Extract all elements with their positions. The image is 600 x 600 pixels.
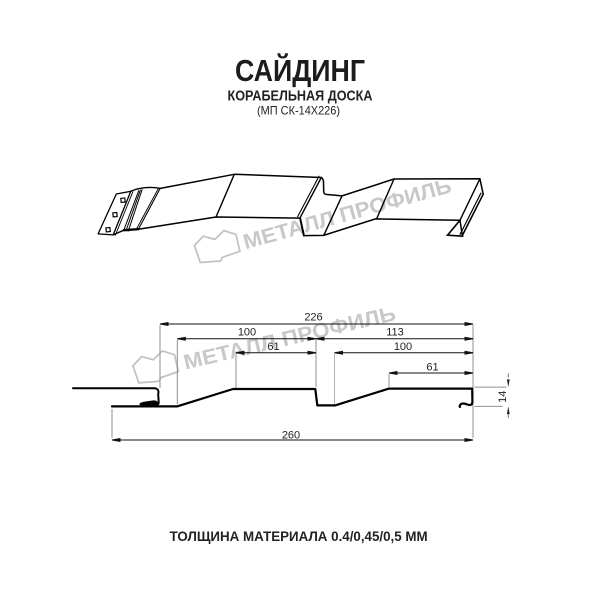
- svg-text:113: 113: [386, 327, 404, 339]
- svg-text:100: 100: [238, 327, 256, 339]
- svg-text:ТОЛЩИНА МАТЕРИАЛА 0.4/0,45/0,5: ТОЛЩИНА МАТЕРИАЛА 0.4/0,45/0,5 ММ: [170, 529, 428, 544]
- svg-text:61: 61: [267, 341, 279, 353]
- svg-text:КОРАБЕЛЬНАЯ ДОСКА: КОРАБЕЛЬНАЯ ДОСКА: [228, 88, 373, 105]
- svg-text:МЕТАЛЛ ПРОФИЛЬ: МЕТАЛЛ ПРОФИЛЬ: [241, 174, 454, 254]
- svg-text:14: 14: [497, 391, 509, 403]
- svg-text:61: 61: [426, 361, 438, 373]
- svg-text:226: 226: [304, 312, 322, 324]
- svg-text:САЙДИНГ: САЙДИНГ: [235, 52, 365, 88]
- svg-text:100: 100: [394, 341, 412, 353]
- svg-text:(МП СК-14Х226): (МП СК-14Х226): [257, 104, 340, 118]
- svg-text:260: 260: [282, 429, 300, 441]
